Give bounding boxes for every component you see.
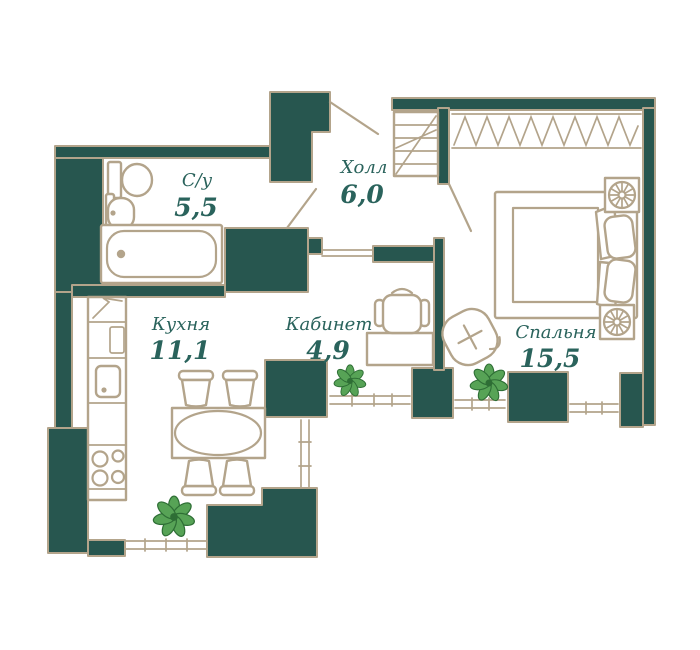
room-area-office: 4,9 (306, 336, 350, 365)
wall-bedroom-left-upper (438, 108, 449, 184)
wall-bathroom-top (55, 146, 270, 158)
pillow (604, 258, 637, 303)
wall-bathroom-hall-notch (308, 238, 322, 254)
dining-chair (223, 371, 257, 407)
wall-pier-corner (620, 373, 643, 427)
wall-pier-office-right (412, 368, 453, 418)
kitchen-counter (88, 297, 126, 500)
wall-hall-office (373, 246, 437, 262)
room-area-kitchen: 11,1 (150, 336, 211, 365)
dining-table (172, 408, 265, 458)
wall-kitchen-left (55, 292, 72, 428)
floor-plan-canvas: С/у 5,5 Холл 6,0 Кухня 11,1 Кабинет 4,9 … (0, 0, 700, 650)
room-area-bathroom: 5,5 (174, 193, 218, 222)
plant-icon (469, 364, 508, 402)
room-label-kitchen: Кухня (151, 314, 210, 335)
office-furniture (367, 289, 433, 365)
wall-bathroom-kitchen (72, 285, 225, 297)
plant-icon (333, 365, 366, 398)
shelf-unit (394, 112, 438, 176)
wall-bathroom-left (55, 158, 103, 292)
nightstand-fan (600, 305, 634, 339)
desk-chair (375, 289, 429, 333)
wall-top-right (392, 98, 655, 110)
floor-plan: С/у 5,5 Холл 6,0 Кухня 11,1 Кабинет 4,9 … (0, 0, 700, 650)
room-label-hall: Холл (339, 157, 388, 178)
bathtub (101, 225, 222, 283)
wall-pier-office-left (265, 360, 327, 417)
room-area-bedroom: 15,5 (520, 344, 581, 373)
wardrobe-hangers (452, 114, 641, 148)
dining-chair (179, 371, 213, 407)
desk (367, 333, 433, 365)
room-label-office: Кабинет (285, 314, 373, 335)
plant-icon (152, 496, 195, 538)
room-label-bathroom: С/у (182, 170, 213, 191)
window-bedroom-2 (570, 402, 618, 414)
window-kitchen (125, 539, 207, 551)
window-kitchen-side (299, 420, 311, 488)
room-area-hall: 6,0 (340, 180, 384, 209)
kitchen-sink (96, 366, 120, 397)
wall-entry-column (270, 92, 330, 182)
hall-furniture (394, 112, 641, 176)
window-office (330, 394, 410, 406)
bedroom-door-swing (449, 184, 471, 231)
dining-chair (220, 460, 254, 496)
toilet (108, 162, 152, 198)
wall-bathroom-hall (225, 228, 308, 292)
room-label-bedroom: Спальня (515, 322, 596, 343)
pillow (604, 214, 637, 259)
entrance-door-swing (330, 102, 378, 134)
wall-kitchen-bottom (88, 540, 125, 556)
wall-kitchen-corner (207, 488, 317, 557)
wall-bottom-left-block (48, 428, 88, 553)
dining-set (172, 371, 265, 495)
wall-right (643, 108, 655, 425)
wall-pier-bedroom (508, 372, 568, 422)
bathroom-door-swing (287, 189, 316, 228)
dining-chair (182, 460, 216, 496)
partition-line (322, 250, 373, 256)
wall-bedroom-left-lower (434, 238, 444, 370)
nightstand-fan (605, 178, 639, 212)
